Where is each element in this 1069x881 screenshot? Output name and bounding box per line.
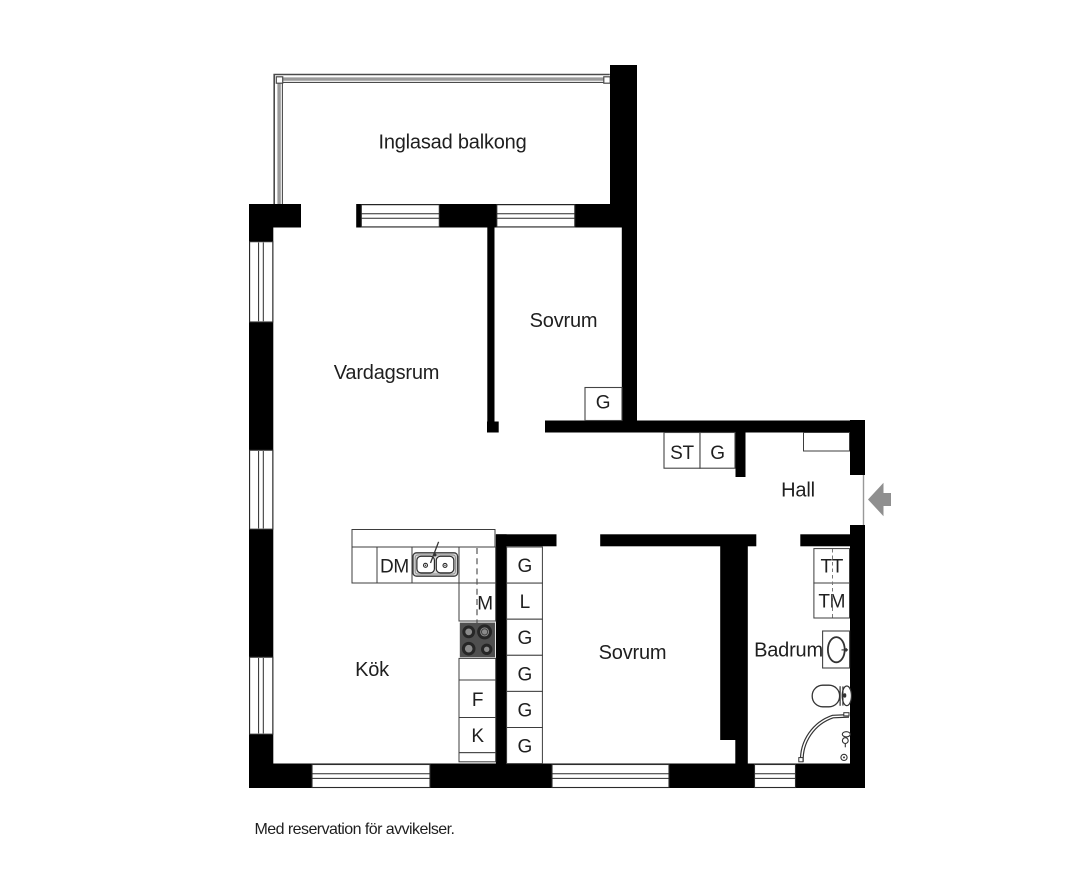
svg-text:Badrum: Badrum: [754, 640, 823, 662]
svg-text:Med reservation för avvikelser: Med reservation för avvikelser.: [255, 821, 455, 838]
svg-text:TT: TT: [820, 557, 843, 578]
svg-text:G: G: [518, 628, 532, 649]
svg-text:L: L: [520, 592, 530, 613]
svg-text:G: G: [518, 700, 532, 721]
svg-text:Kök: Kök: [355, 659, 390, 681]
svg-text:ST: ST: [670, 443, 694, 464]
svg-text:DM: DM: [380, 557, 409, 578]
svg-text:Sovrum: Sovrum: [530, 310, 598, 332]
svg-text:G: G: [518, 556, 532, 577]
svg-text:Hall: Hall: [781, 480, 815, 502]
svg-text:F: F: [472, 690, 483, 711]
svg-text:G: G: [518, 664, 532, 685]
svg-text:Sovrum: Sovrum: [599, 642, 667, 664]
svg-text:Inglasad balkong: Inglasad balkong: [378, 132, 526, 154]
svg-text:Vardagsrum: Vardagsrum: [334, 362, 439, 384]
svg-text:K: K: [471, 726, 484, 747]
svg-text:G: G: [596, 393, 610, 414]
svg-text:M: M: [477, 594, 493, 615]
svg-text:G: G: [518, 737, 532, 758]
svg-text:TM: TM: [818, 592, 845, 613]
svg-text:G: G: [710, 443, 724, 464]
